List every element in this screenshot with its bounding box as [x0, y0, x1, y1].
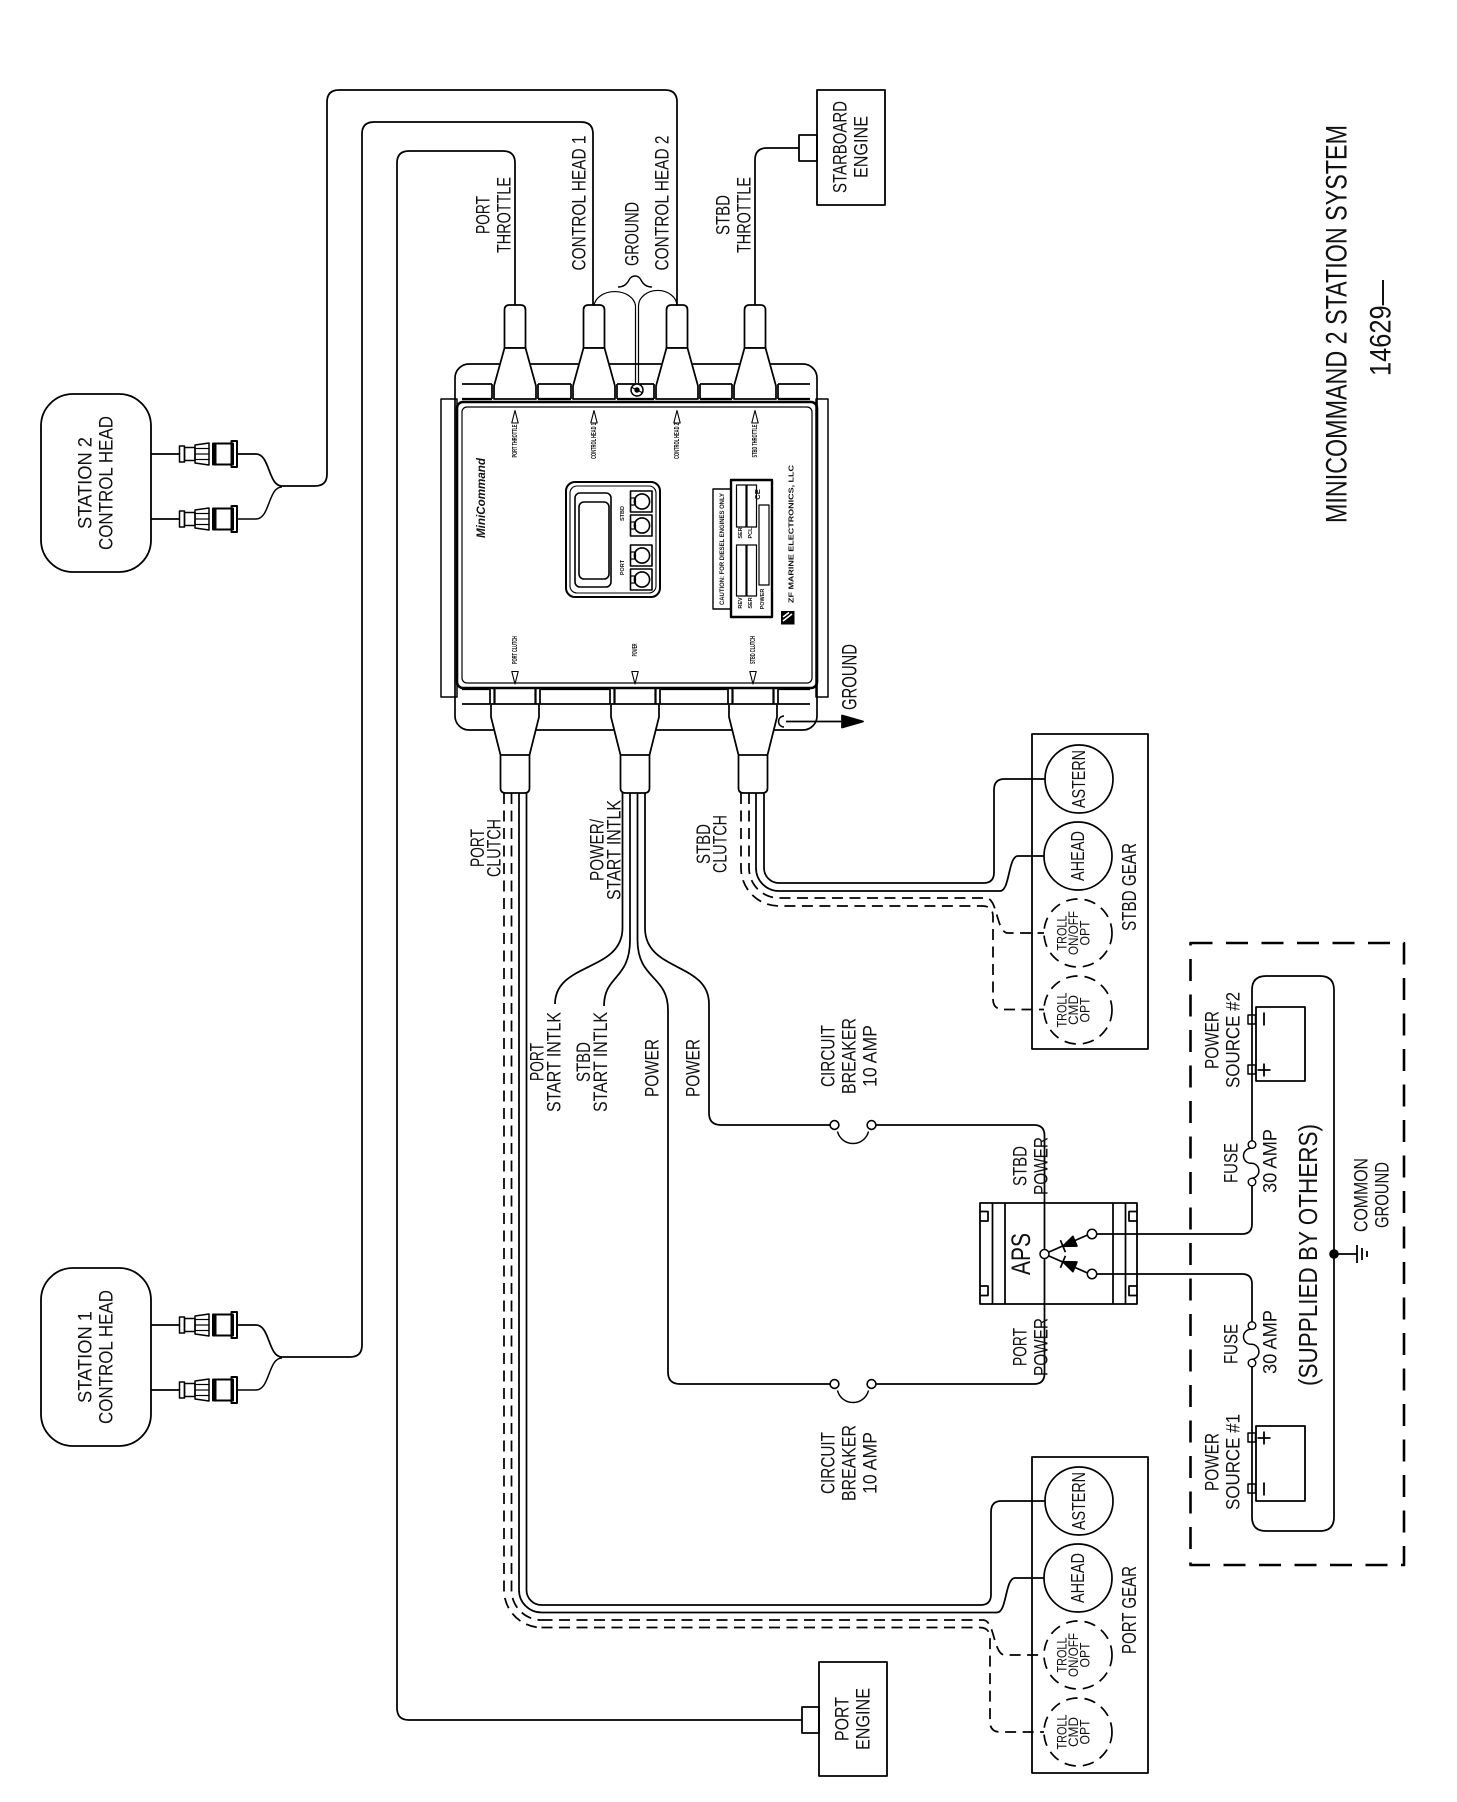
svg-text:CIRCUIT: CIRCUIT [819, 1432, 840, 1494]
svg-text:START INTLK: START INTLK [591, 1012, 612, 1112]
svg-text:MINICOMMAND 2 STATION SYSTE: MINICOMMAND 2 STATION SYSTEM [1321, 125, 1354, 523]
svg-text:CIRCUIT: CIRCUIT [819, 1025, 840, 1087]
svg-text:CONTROL HEAD 2: CONTROL HEAD 2 [653, 136, 674, 271]
svg-text:CAUTION: FOR DIESEL ENGINES ON: CAUTION: FOR DIESEL ENGINES ONLY [719, 492, 726, 605]
svg-text:OPT: OPT [1077, 1719, 1093, 1744]
svg-text:CE: CE [753, 489, 762, 499]
svg-text:ENGINE: ENGINE [852, 116, 873, 178]
svg-text:SER: SER [738, 527, 744, 538]
svg-text:BREAKER: BREAKER [840, 1425, 861, 1501]
svg-text:THROTTLE: THROTTLE [735, 177, 756, 253]
svg-text:SOURCE #1: SOURCE #1 [1224, 1414, 1245, 1510]
svg-text:ASTERN: ASTERN [1069, 750, 1089, 808]
svg-text:PORT: PORT [1011, 1328, 1032, 1366]
svg-text:AHEAD: AHEAD [1068, 1553, 1088, 1603]
svg-text:POWER: POWER [643, 1039, 664, 1097]
svg-text:CONTROL HEAD: CONTROL HEAD [97, 1290, 118, 1424]
svg-text:CLUTCH: CLUTCH [711, 815, 732, 873]
svg-text:STARBOARD: STARBOARD [831, 101, 852, 193]
svg-text:10 AMP: 10 AMP [861, 1432, 882, 1494]
svg-text:CONTROL HEAD 1: CONTROL HEAD 1 [570, 136, 591, 271]
svg-text:STBD: STBD [1011, 1146, 1032, 1186]
svg-text:GROUND: GROUND [839, 644, 862, 710]
svg-text:CONTROL HEAD 1: CONTROL HEAD 1 [591, 423, 598, 459]
svg-text:ASTERN: ASTERN [1069, 1472, 1089, 1530]
svg-text:PCL: PCL [748, 527, 754, 539]
svg-text:OPT: OPT [1077, 1642, 1093, 1667]
svg-text:ENGINE: ENGINE [854, 1688, 875, 1750]
svg-text:FUSE: FUSE [1222, 1143, 1243, 1183]
svg-text:ZF MARINE ELECTRONICS, LLC: ZF MARINE ELECTRONICS, LLC [787, 465, 796, 603]
svg-text:STBD THROTTLE: STBD THROTTLE [752, 424, 759, 457]
svg-text:POWER: POWER [632, 644, 639, 657]
svg-text:SOURCE #2: SOURCE #2 [1224, 992, 1245, 1088]
svg-text:STBD: STBD [620, 506, 626, 521]
svg-text:14629—: 14629— [1365, 280, 1398, 376]
svg-text:COMMON: COMMON [1352, 1158, 1373, 1232]
svg-text:PORT: PORT [474, 196, 495, 234]
svg-text:PORT THROTTLE: PORT THROTTLE [512, 424, 519, 457]
svg-text:STBD CLUTCH: STBD CLUTCH [750, 636, 757, 664]
svg-text:CONTROL HEAD: CONTROL HEAD [97, 416, 118, 550]
svg-text:GROUND: GROUND [1373, 1162, 1394, 1228]
svg-text:THROTTLE: THROTTLE [495, 177, 516, 253]
svg-text:POWER: POWER [760, 589, 766, 610]
svg-text:30 AMP: 30 AMP [1261, 1310, 1282, 1374]
svg-text:PORT CLUTCH: PORT CLUTCH [512, 636, 519, 664]
svg-text:POWER: POWER [1032, 1318, 1053, 1376]
svg-text:AHEAD: AHEAD [1068, 831, 1088, 881]
svg-text:BREAKER: BREAKER [840, 1018, 861, 1094]
svg-text:MiniCommand: MiniCommand [474, 457, 488, 538]
svg-text:POWER: POWER [1203, 1433, 1224, 1491]
svg-text:GROUND: GROUND [623, 202, 644, 266]
svg-text:(SUPPLIED BY OTHERS): (SUPPLIED BY OTHERS) [1293, 1124, 1323, 1386]
svg-text:SER: SER [748, 597, 754, 608]
svg-text:POWER: POWER [1203, 1011, 1224, 1069]
svg-text:POWER: POWER [1032, 1137, 1053, 1195]
svg-text:OPT: OPT [1077, 997, 1093, 1022]
svg-text:STATION 1: STATION 1 [76, 1311, 97, 1403]
svg-text:CONTROL HEAD 2: CONTROL HEAD 2 [674, 423, 681, 459]
svg-text:PORT: PORT [833, 1697, 854, 1741]
svg-text:30 AMP: 30 AMP [1261, 1129, 1282, 1193]
svg-text:FUSE: FUSE [1222, 1324, 1243, 1364]
svg-text:PORT: PORT [620, 559, 626, 575]
svg-text:START INTLK: START INTLK [545, 1012, 566, 1112]
svg-text:OPT: OPT [1077, 920, 1093, 945]
svg-text:STBD: STBD [714, 195, 735, 235]
svg-text:STBD GEAR: STBD GEAR [1119, 843, 1141, 931]
svg-text:CLUTCH: CLUTCH [485, 819, 506, 877]
svg-text:APS: APS [1006, 1233, 1036, 1275]
svg-text:POWER: POWER [684, 1039, 705, 1097]
svg-text:STATION 2: STATION 2 [76, 437, 97, 529]
svg-text:PORT GEAR: PORT GEAR [1119, 1566, 1141, 1654]
svg-text:REV: REV [738, 597, 744, 609]
svg-text:START INTLK: START INTLK [605, 800, 626, 900]
svg-text:10 AMP: 10 AMP [861, 1025, 882, 1087]
